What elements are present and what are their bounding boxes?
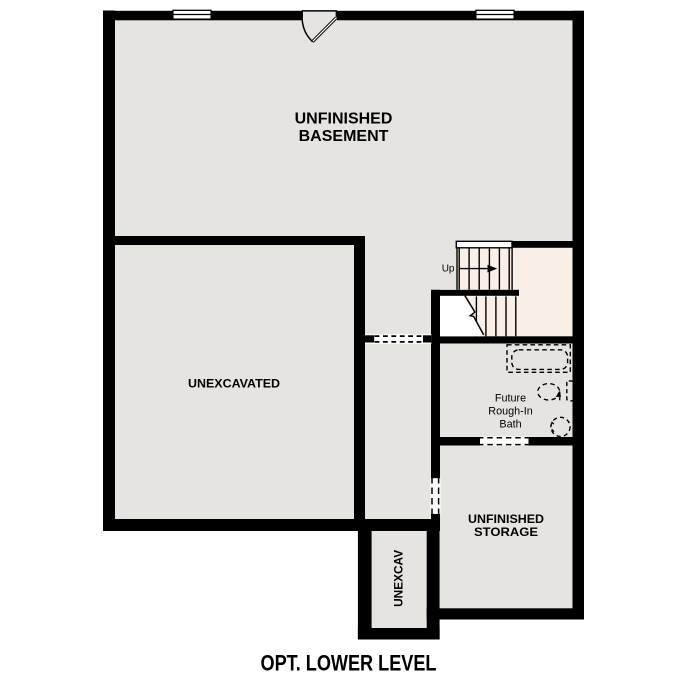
- svg-text:UNFINISHED: UNFINISHED: [295, 110, 393, 127]
- svg-text:Rough-In: Rough-In: [488, 406, 532, 418]
- svg-text:UNFINISHED: UNFINISHED: [468, 512, 544, 526]
- svg-text:Up: Up: [442, 263, 455, 274]
- svg-text:OPT. LOWER LEVEL: OPT. LOWER LEVEL: [261, 651, 437, 676]
- svg-text:STORAGE: STORAGE: [474, 525, 538, 539]
- svg-text:Bath: Bath: [499, 419, 521, 431]
- svg-text:UNEXCAV: UNEXCAV: [392, 550, 406, 607]
- svg-text:Future: Future: [495, 393, 526, 405]
- svg-text:BASEMENT: BASEMENT: [299, 128, 389, 145]
- svg-text:UNEXCAVATED: UNEXCAVATED: [188, 377, 280, 391]
